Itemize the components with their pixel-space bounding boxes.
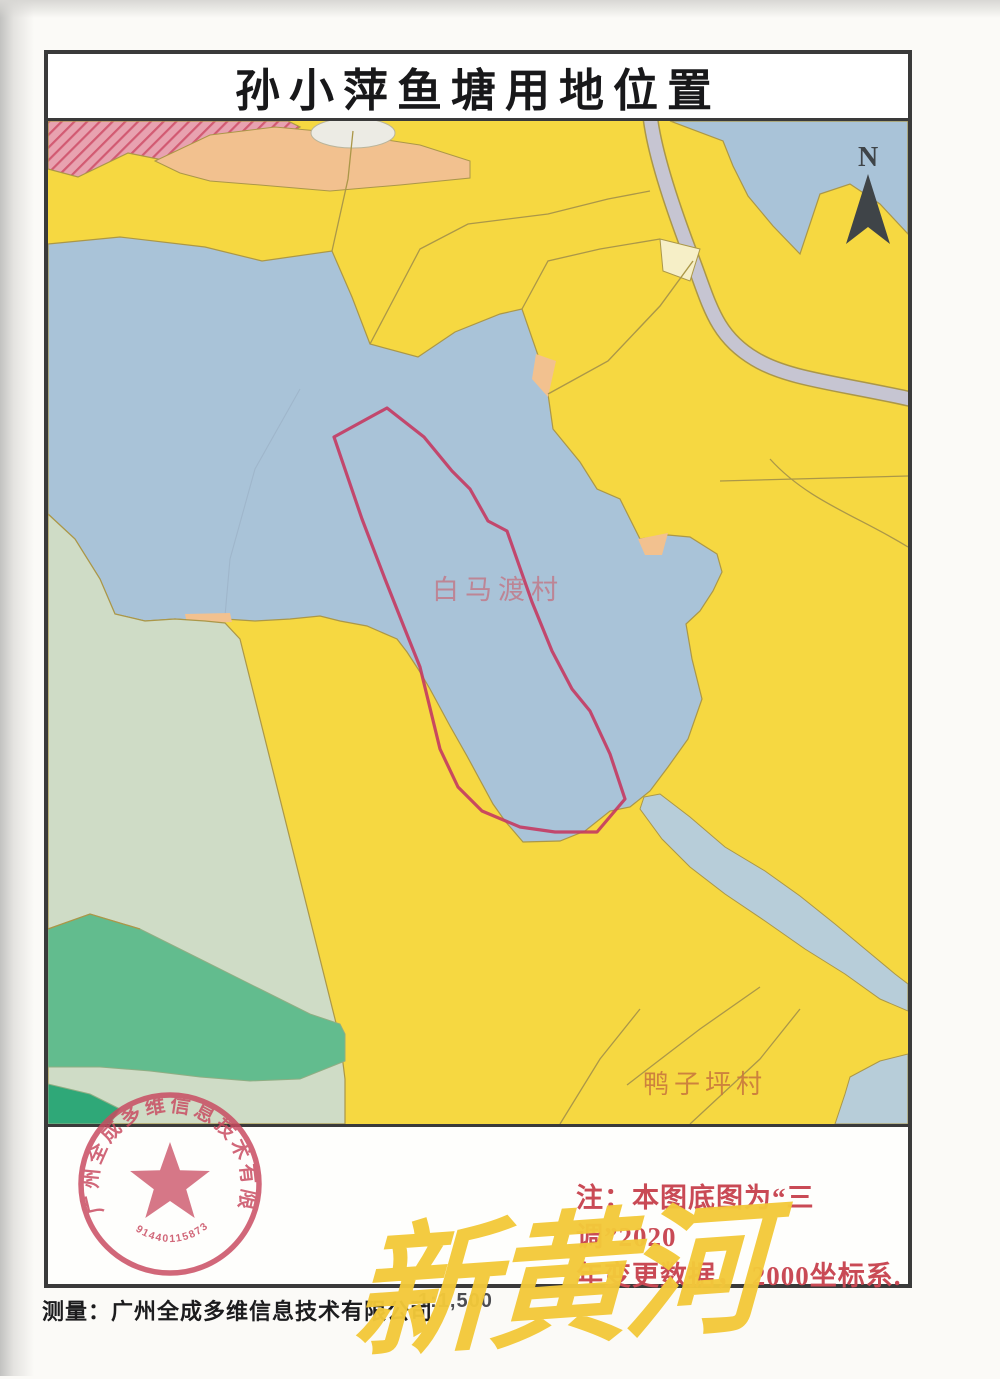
watermark-text: 新黄河 <box>350 1191 784 1372</box>
land-use-map: 白马渡村 鸭子坪村 N <box>48 121 908 1124</box>
company-stamp: 广州全成多维信息技术有限公司 914401158734874746 <box>68 1078 272 1282</box>
scan-shadow-left <box>0 0 34 1376</box>
title-box: 孙小萍鱼塘用地位置 <box>48 54 908 121</box>
scan-shadow-top <box>0 0 1000 18</box>
village-label-baimadu: 白马渡村 <box>432 575 564 605</box>
compass-n-label: N <box>858 142 878 173</box>
map-area: 白马渡村 鸭子坪村 N <box>48 121 908 1127</box>
stamp-star-icon <box>130 1142 210 1218</box>
page-title: 孙小萍鱼塘用地位置 <box>235 54 721 119</box>
village-label-yaziping: 鸭子坪村 <box>643 1070 767 1099</box>
